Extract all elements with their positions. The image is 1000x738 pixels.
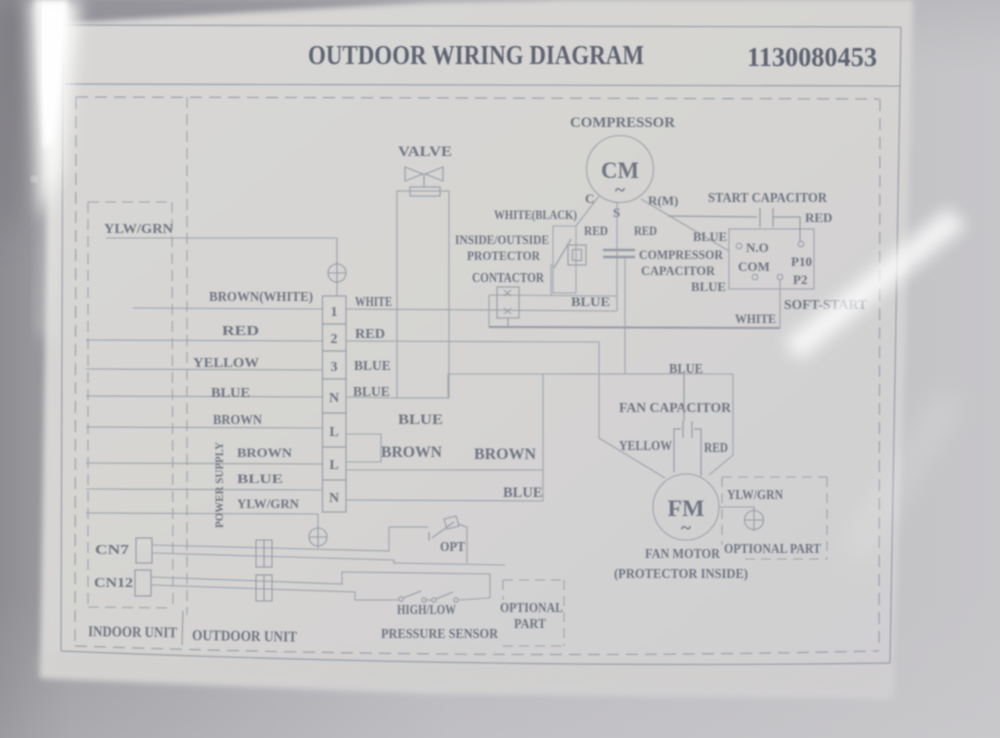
svg-text:COM: COM — [738, 259, 770, 274]
svg-text:N: N — [329, 491, 339, 506]
svg-text:YLW/GRN: YLW/GRN — [727, 487, 783, 502]
svg-text:WHITE: WHITE — [355, 294, 392, 309]
svg-text:P2: P2 — [793, 272, 807, 287]
svg-text:(PROTECTOR INSIDE): (PROTECTOR INSIDE) — [614, 567, 748, 582]
svg-text:START CAPACITOR: START CAPACITOR — [708, 190, 827, 205]
svg-text:~: ~ — [681, 518, 691, 539]
svg-text:OPTIONAL PART: OPTIONAL PART — [724, 541, 821, 556]
svg-text:1130080453: 1130080453 — [747, 42, 877, 72]
svg-text:INSIDE/OUTSIDE: INSIDE/OUTSIDE — [455, 233, 549, 247]
svg-text:POWER SUPPLY: POWER SUPPLY — [212, 442, 226, 528]
svg-text:YLW/GRN: YLW/GRN — [104, 221, 173, 236]
svg-text:PART: PART — [514, 616, 546, 631]
svg-text:BLUE: BLUE — [237, 472, 283, 486]
svg-text:INDOOR UNIT: INDOOR UNIT — [88, 624, 177, 641]
svg-text:RED: RED — [634, 223, 657, 238]
svg-text:BROWN(WHITE): BROWN(WHITE) — [209, 289, 313, 304]
svg-text:P10: P10 — [791, 254, 812, 269]
svg-text:RED: RED — [584, 223, 608, 238]
svg-text:BLUE: BLUE — [669, 361, 703, 376]
svg-text:VALVE: VALVE — [398, 144, 452, 160]
svg-text:COMPRESSOR: COMPRESSOR — [570, 115, 676, 131]
svg-text:FAN MOTOR: FAN MOTOR — [645, 547, 721, 562]
svg-text:~: ~ — [615, 180, 625, 201]
svg-text:BLUE: BLUE — [354, 358, 391, 373]
svg-text:OPTIONAL: OPTIONAL — [500, 600, 563, 615]
svg-text:BROWN: BROWN — [381, 444, 442, 461]
svg-text:3: 3 — [331, 360, 338, 375]
svg-text:CN12: CN12 — [94, 576, 133, 591]
svg-text:COMPRESSOR: COMPRESSOR — [639, 247, 724, 262]
svg-text:HIGH/LOW: HIGH/LOW — [397, 602, 456, 617]
svg-text:L: L — [329, 458, 338, 473]
svg-text:YELLOW: YELLOW — [619, 438, 672, 453]
svg-text:CN7: CN7 — [95, 543, 129, 558]
svg-text:YELLOW: YELLOW — [193, 355, 260, 370]
svg-text:N.O: N.O — [746, 240, 769, 255]
svg-text:RED: RED — [355, 326, 385, 341]
svg-text:1: 1 — [331, 305, 338, 320]
svg-text:BLUE: BLUE — [211, 385, 250, 400]
svg-text:BLUE: BLUE — [693, 229, 727, 244]
svg-text:BROWN: BROWN — [237, 446, 292, 460]
svg-text:OPT: OPT — [440, 539, 465, 554]
svg-text:BLUE: BLUE — [691, 279, 726, 294]
svg-text:RED: RED — [704, 440, 728, 455]
svg-text:FAN CAPACITOR: FAN CAPACITOR — [619, 401, 732, 416]
svg-text:RED: RED — [222, 323, 259, 338]
svg-text:OUTDOOR WIRING DIAGRAM: OUTDOOR WIRING DIAGRAM — [308, 40, 644, 70]
svg-text:BLUE: BLUE — [503, 485, 543, 501]
svg-text:BROWN: BROWN — [213, 412, 262, 427]
svg-text:BROWN: BROWN — [474, 446, 536, 463]
svg-text:WHITE(BLACK): WHITE(BLACK) — [494, 208, 577, 222]
svg-text:CONTACTOR: CONTACTOR — [472, 270, 544, 285]
svg-text:BLUE: BLUE — [398, 412, 443, 428]
svg-text:PRESSURE SENSOR: PRESSURE SENSOR — [381, 626, 498, 641]
svg-text:CAPACITOR: CAPACITOR — [641, 263, 716, 278]
svg-text:YLW/GRN: YLW/GRN — [237, 497, 299, 511]
svg-text:OUTDOOR UNIT: OUTDOOR UNIT — [192, 628, 297, 646]
svg-text:WHITE: WHITE — [735, 311, 776, 326]
svg-text:PROTECTOR: PROTECTOR — [467, 249, 541, 263]
svg-text:RED: RED — [805, 210, 832, 225]
svg-text:N: N — [329, 391, 339, 406]
svg-text:BLUE: BLUE — [571, 294, 610, 309]
svg-text:2: 2 — [331, 332, 338, 347]
svg-text:L: L — [329, 425, 338, 440]
